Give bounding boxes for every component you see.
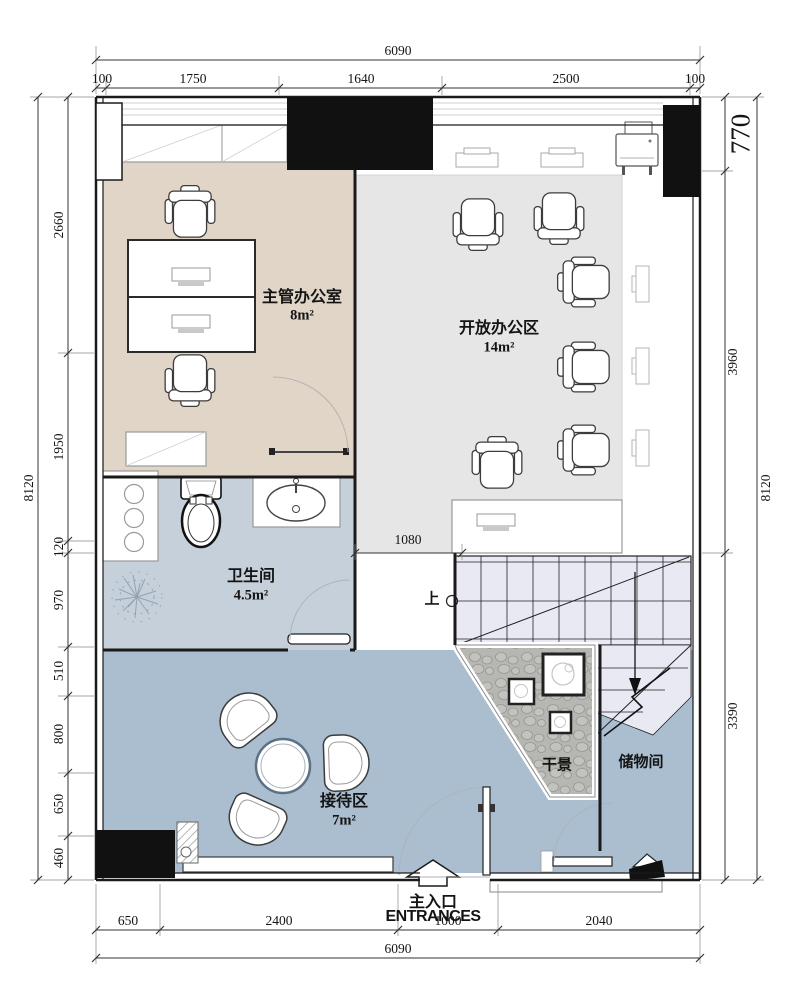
dim-top-seg: 1640 [348,71,375,87]
dim-left-seg: 650 [51,794,67,814]
room-label-open-office: 开放办公区 [459,314,539,338]
stair-up-label: 上 [424,588,439,609]
dim-right-seg: 3960 [725,349,741,376]
wardrobe-cabinet [122,125,287,162]
room-label-bathroom: 卫生间 [227,562,275,586]
dim-left-seg: 800 [51,724,67,744]
monitor-icon [172,315,210,328]
room-area-bathroom: 4.5m² [234,588,269,605]
utility-counter [103,471,158,561]
room-label-reception: 接待区 [320,787,368,811]
monitor-icon [172,268,210,281]
floor-plan: 6090 100 1750 1640 2500 100 650 2400 100… [0,0,800,983]
wall-block [287,97,433,170]
room-label-dry-landscape: 干景 [542,754,572,775]
dim-bottom-seg: 2040 [586,913,613,929]
floor-plan-drawing [0,0,800,983]
stepping-stone [550,712,571,733]
stepping-stone [543,654,584,695]
entrance-step [490,880,662,892]
window-desk [456,148,583,167]
dim-top-seg: 2500 [553,71,580,87]
monitor-icon [477,514,515,526]
dim-top-seg: 1750 [180,71,207,87]
dim-left-seg: 460 [51,848,67,868]
dim-left-seg: 120 [51,537,67,557]
room-area-open-office: 14m² [484,340,515,357]
dim-right-seg: 770 [726,114,757,155]
dim-left-seg: 2660 [51,212,67,239]
dim-left-seg: 970 [51,590,67,610]
room-area-reception: 7m² [332,813,356,830]
sink-icon [253,477,340,527]
entrance-label-en: ENTRANCES [385,908,480,926]
dim-left-seg: 1950 [51,434,67,461]
dim-right-seg: 3390 [725,703,741,730]
dim-corridor-width: 1080 [395,532,422,548]
coffee-table [256,739,310,793]
printer-icon [616,122,658,175]
wall-keyboard [632,266,649,466]
dim-left-overall: 8120 [21,475,37,502]
room-label-storage: 储物间 [618,751,663,772]
stepping-stone [509,679,534,704]
dim-bottom-seg: 650 [118,913,138,929]
dim-bottom-seg: 2400 [266,913,293,929]
dim-left-seg: 510 [51,661,67,681]
reception-bench [183,857,393,872]
dim-top-seg: 100 [685,71,705,87]
dim-right-overall: 8120 [758,475,774,502]
room-area-executive: 8m² [290,308,314,325]
wall-pier [96,103,122,180]
wall-block [96,830,175,878]
executive-desk [128,240,255,352]
floor-drain [177,822,198,863]
dim-top-overall: 6090 [385,43,412,59]
wall-block [663,105,700,197]
dim-bottom-overall: 6090 [385,941,412,957]
dim-top-seg: 100 [92,71,112,87]
room-label-executive: 主管办公室 [262,283,342,307]
toilet-icon [181,477,221,547]
work-table [452,500,622,553]
low-cabinet [126,432,206,466]
